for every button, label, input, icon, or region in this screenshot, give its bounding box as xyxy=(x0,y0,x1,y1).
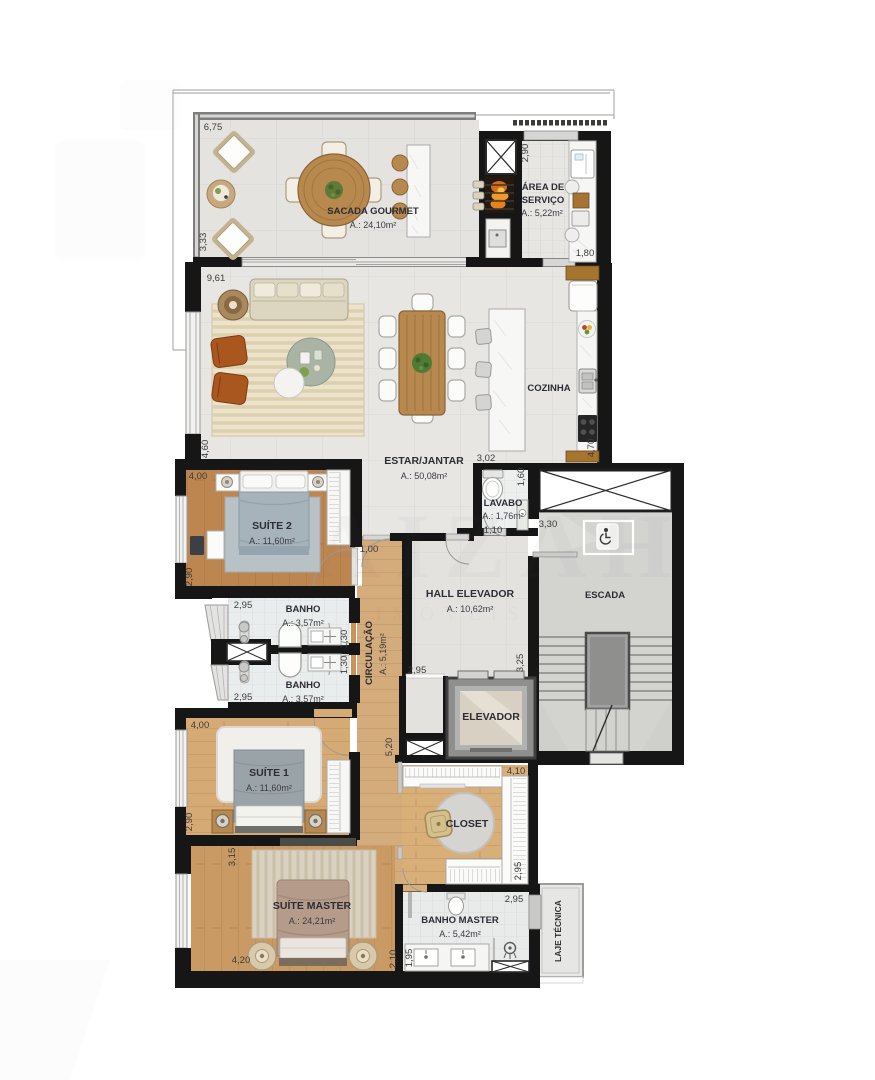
svg-text:BANHO: BANHO xyxy=(286,680,321,691)
svg-text:2,10: 2,10 xyxy=(388,950,399,969)
svg-text:ELEVADOR: ELEVADOR xyxy=(462,711,520,723)
svg-text:COZINHA: COZINHA xyxy=(527,383,570,394)
svg-text:IMÓVEIS: IMÓVEIS xyxy=(375,601,528,625)
svg-text:CIRCULAÇÃO: CIRCULAÇÃO xyxy=(364,621,375,685)
svg-text:A.: 3,57m²: A.: 3,57m² xyxy=(282,618,324,628)
svg-text:A.: 11,60m²: A.: 11,60m² xyxy=(246,783,292,793)
svg-text:A.: 11,60m²: A.: 11,60m² xyxy=(249,536,295,546)
svg-text:2,95: 2,95 xyxy=(513,862,524,881)
svg-text:2,95: 2,95 xyxy=(408,665,427,676)
svg-text:1,30: 1,30 xyxy=(339,630,350,649)
svg-text:1,60: 1,60 xyxy=(516,468,527,487)
svg-text:SACADA GOURMET: SACADA GOURMET xyxy=(327,206,419,217)
svg-text:A.: 5,42m²: A.: 5,42m² xyxy=(439,929,481,939)
svg-text:6,75: 6,75 xyxy=(204,122,223,133)
svg-text:A.: 24,10m²: A.: 24,10m² xyxy=(350,220,397,230)
svg-text:5,20: 5,20 xyxy=(384,738,395,757)
svg-text:2,95: 2,95 xyxy=(234,600,253,611)
svg-text:A.: 50,08m²: A.: 50,08m² xyxy=(401,471,448,481)
svg-text:2,95: 2,95 xyxy=(505,894,524,905)
svg-text:A.: 24,21m²: A.: 24,21m² xyxy=(289,916,336,926)
svg-text:4,00: 4,00 xyxy=(189,471,208,482)
svg-text:9,61: 9,61 xyxy=(207,273,226,284)
svg-text:2,90: 2,90 xyxy=(184,813,195,832)
svg-text:4,70: 4,70 xyxy=(586,439,597,458)
svg-text:3,15: 3,15 xyxy=(227,848,238,867)
svg-text:1,95: 1,95 xyxy=(404,949,415,968)
svg-text:3,33: 3,33 xyxy=(198,233,209,252)
svg-text:A.: 5,22m²: A.: 5,22m² xyxy=(521,208,563,218)
svg-text:SERVIÇO: SERVIÇO xyxy=(522,195,565,206)
svg-text:SUÍTE 1: SUÍTE 1 xyxy=(249,766,289,779)
svg-text:A.: 3,57m²: A.: 3,57m² xyxy=(282,694,324,704)
svg-text:4,20: 4,20 xyxy=(232,955,251,966)
svg-text:4,10: 4,10 xyxy=(507,766,526,777)
svg-text:4,60: 4,60 xyxy=(200,440,211,459)
svg-text:2,95: 2,95 xyxy=(234,692,253,703)
svg-text:BANHO MASTER: BANHO MASTER xyxy=(421,915,499,926)
svg-text:2,90: 2,90 xyxy=(184,568,195,587)
svg-text:ÁREA DE: ÁREA DE xyxy=(522,182,564,193)
svg-text:1,80: 1,80 xyxy=(576,248,595,259)
svg-text:CLOSET: CLOSET xyxy=(446,818,489,830)
svg-text:SUÍTE 2: SUÍTE 2 xyxy=(252,519,292,532)
svg-text:AIZAH: AIZAH xyxy=(314,495,686,597)
svg-text:1,30: 1,30 xyxy=(339,656,350,675)
svg-text:BANHO: BANHO xyxy=(286,604,321,615)
svg-text:3,02: 3,02 xyxy=(477,453,496,464)
svg-text:SUÍTE MASTER: SUÍTE MASTER xyxy=(273,899,352,912)
svg-text:LAJE TÉCNICA: LAJE TÉCNICA xyxy=(553,900,563,962)
svg-text:4,00: 4,00 xyxy=(191,720,210,731)
svg-text:3,25: 3,25 xyxy=(515,654,526,673)
svg-text:2,90: 2,90 xyxy=(520,144,531,163)
svg-text:A.: 5,19m²: A.: 5,19m² xyxy=(378,633,388,675)
svg-text:ESTAR/JANTAR: ESTAR/JANTAR xyxy=(384,455,464,467)
